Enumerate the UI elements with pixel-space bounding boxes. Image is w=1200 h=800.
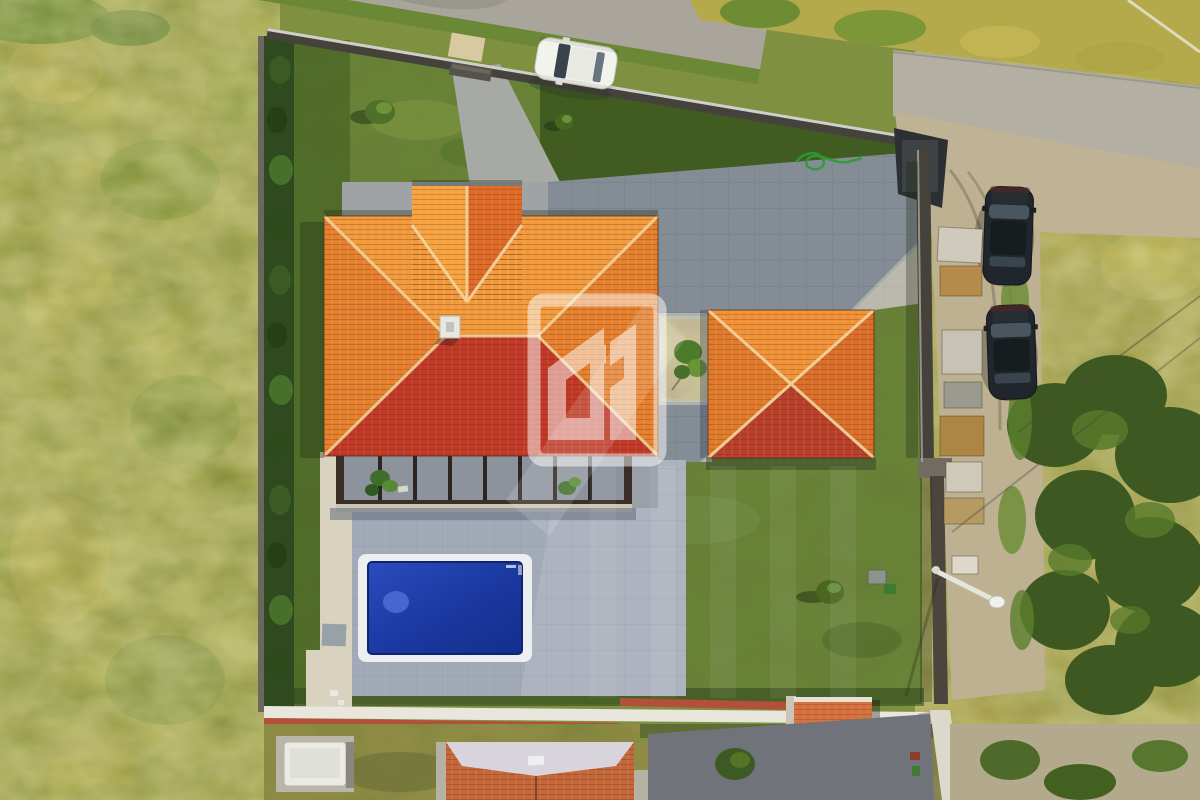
pool-light bbox=[383, 591, 409, 613]
perimeter-hedge bbox=[258, 36, 294, 712]
pallet-stack bbox=[937, 227, 984, 574]
doormat bbox=[322, 624, 347, 647]
left-field bbox=[0, 0, 280, 800]
garage bbox=[700, 310, 876, 470]
utility-box bbox=[868, 570, 886, 584]
aerial-photo bbox=[0, 0, 1200, 800]
house-west-shadow bbox=[300, 222, 324, 458]
scene-root bbox=[0, 0, 1200, 800]
windshield bbox=[989, 204, 1029, 219]
pool bbox=[358, 554, 532, 662]
neighbor-house bbox=[446, 742, 634, 800]
